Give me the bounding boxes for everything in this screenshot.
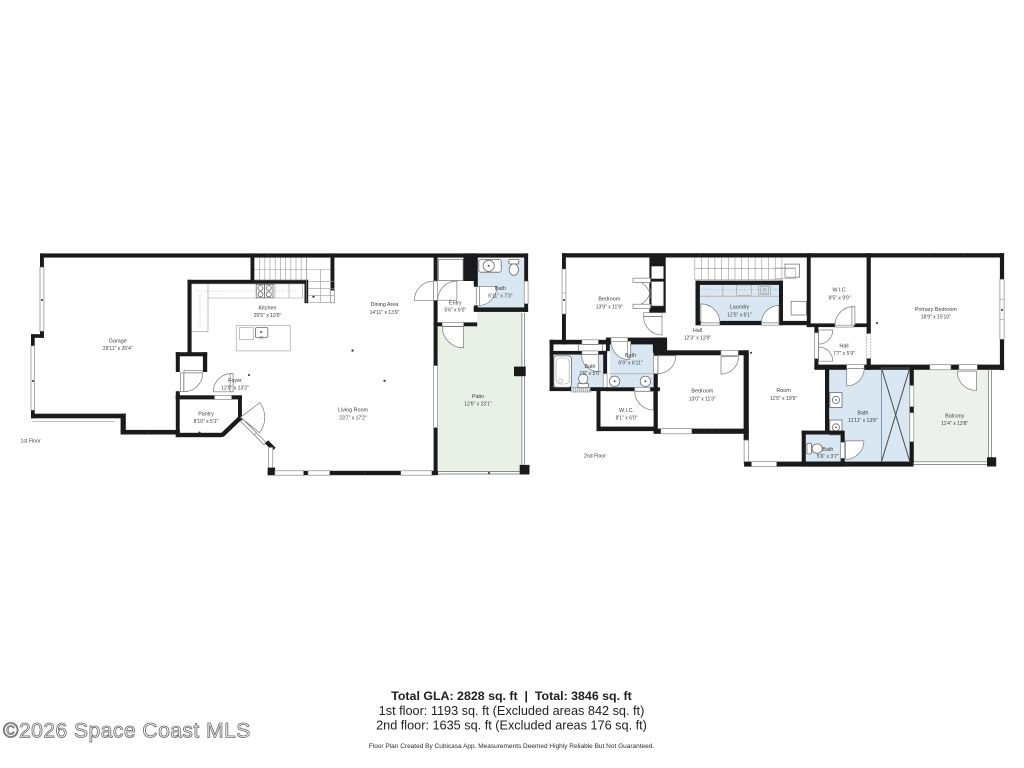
svg-text:2nd Floor: 2nd Floor (584, 453, 606, 459)
svg-text:Bath: Bath (495, 286, 506, 292)
svg-text:6'9" x 6'11": 6'9" x 6'11" (618, 360, 642, 366)
svg-text:Kitchen: Kitchen (259, 305, 277, 311)
svg-text:Bath: Bath (584, 364, 595, 370)
svg-text:5'6" x 3'7": 5'6" x 3'7" (817, 454, 839, 460)
svg-text:5'6" x 6'0": 5'6" x 6'0" (444, 308, 466, 314)
svg-text:Bedroom: Bedroom (691, 389, 713, 395)
svg-text:Bedroom: Bedroom (598, 297, 620, 303)
svg-text:18'9" x 15'10": 18'9" x 15'10" (921, 315, 951, 321)
svg-text:Room: Room (776, 388, 791, 394)
svg-text:8'10" x 5'1": 8'10" x 5'1" (194, 419, 219, 425)
svg-text:7'7" x 5'9": 7'7" x 5'9" (833, 351, 855, 357)
svg-text:12'5" x 6'1": 12'5" x 6'1" (727, 312, 752, 318)
svg-text:Garage: Garage (109, 338, 127, 344)
svg-text:7'0" x 5'0": 7'0" x 5'0" (579, 371, 601, 377)
svg-text:1st Floor: 1st Floor (21, 439, 41, 445)
svg-text:6'11" x 7'3": 6'11" x 7'3" (488, 294, 512, 300)
svg-text:1st floor: 1193 sq. ft (Exclud: 1st floor: 1193 sq. ft (Excluded areas 8… (379, 704, 645, 718)
svg-text:12'9" x 13'2": 12'9" x 13'2" (221, 386, 249, 392)
svg-text:Bath: Bath (857, 410, 868, 416)
svg-text:Dining Area: Dining Area (371, 302, 399, 308)
svg-text:©2026 Space Coast MLS: ©2026 Space Coast MLS (3, 719, 251, 742)
svg-text:11'4" x 13'8": 11'4" x 13'8" (941, 421, 968, 427)
svg-text:Patio: Patio (472, 394, 484, 400)
svg-text:13'9" x 11'9": 13'9" x 11'9" (596, 304, 623, 310)
svg-text:8'5" x 9'9": 8'5" x 9'9" (829, 295, 851, 301)
svg-text:23'7" x 17'2": 23'7" x 17'2" (339, 415, 367, 421)
svg-text:14'11" x 13'9": 14'11" x 13'9" (370, 310, 400, 316)
svg-text:2nd floor: 1635 sq. ft (Exclud: 2nd floor: 1635 sq. ft (Excluded areas 1… (376, 719, 647, 733)
svg-text:Floor Plan Created By Cubicasa: Floor Plan Created By Cubicasa App. Meas… (369, 743, 655, 750)
svg-text:29'11" x 25'4": 29'11" x 25'4" (103, 346, 133, 352)
svg-text:20'5" x 10'0": 20'5" x 10'0" (254, 313, 282, 319)
svg-text:Balcony: Balcony (945, 413, 964, 419)
svg-text:13'0" x 11'3": 13'0" x 11'3" (689, 396, 716, 402)
svg-text:Primary Bedroom: Primary Bedroom (915, 307, 957, 313)
svg-text:Hall: Hall (839, 343, 848, 349)
svg-text:Laundry: Laundry (730, 305, 750, 311)
svg-text:Pantry: Pantry (198, 411, 214, 417)
svg-text:8'1" x 6'0": 8'1" x 6'0" (616, 416, 638, 422)
svg-text:11'11" x 13'8": 11'11" x 13'8" (848, 418, 878, 424)
svg-text:Bath: Bath (822, 447, 833, 453)
svg-text:Total GLA: 2828 sq. ft | Tot: Total GLA: 2828 sq. ft | Total: 3846 sq.… (391, 689, 632, 703)
svg-text:Bath: Bath (625, 353, 636, 359)
svg-text:12'6" x 23'1": 12'6" x 23'1" (464, 401, 492, 407)
svg-text:W.I.C.: W.I.C. (619, 408, 634, 414)
svg-text:Foyer: Foyer (228, 378, 242, 384)
svg-text:Entry: Entry (449, 300, 462, 306)
svg-text:12'3" x 13'9": 12'3" x 13'9" (684, 336, 712, 342)
svg-text:W.I.C.: W.I.C. (832, 288, 847, 294)
svg-text:Living Room: Living Room (338, 408, 368, 414)
svg-text:Hall: Hall (693, 328, 702, 334)
svg-text:11'5" x 19'9": 11'5" x 19'9" (770, 396, 797, 402)
